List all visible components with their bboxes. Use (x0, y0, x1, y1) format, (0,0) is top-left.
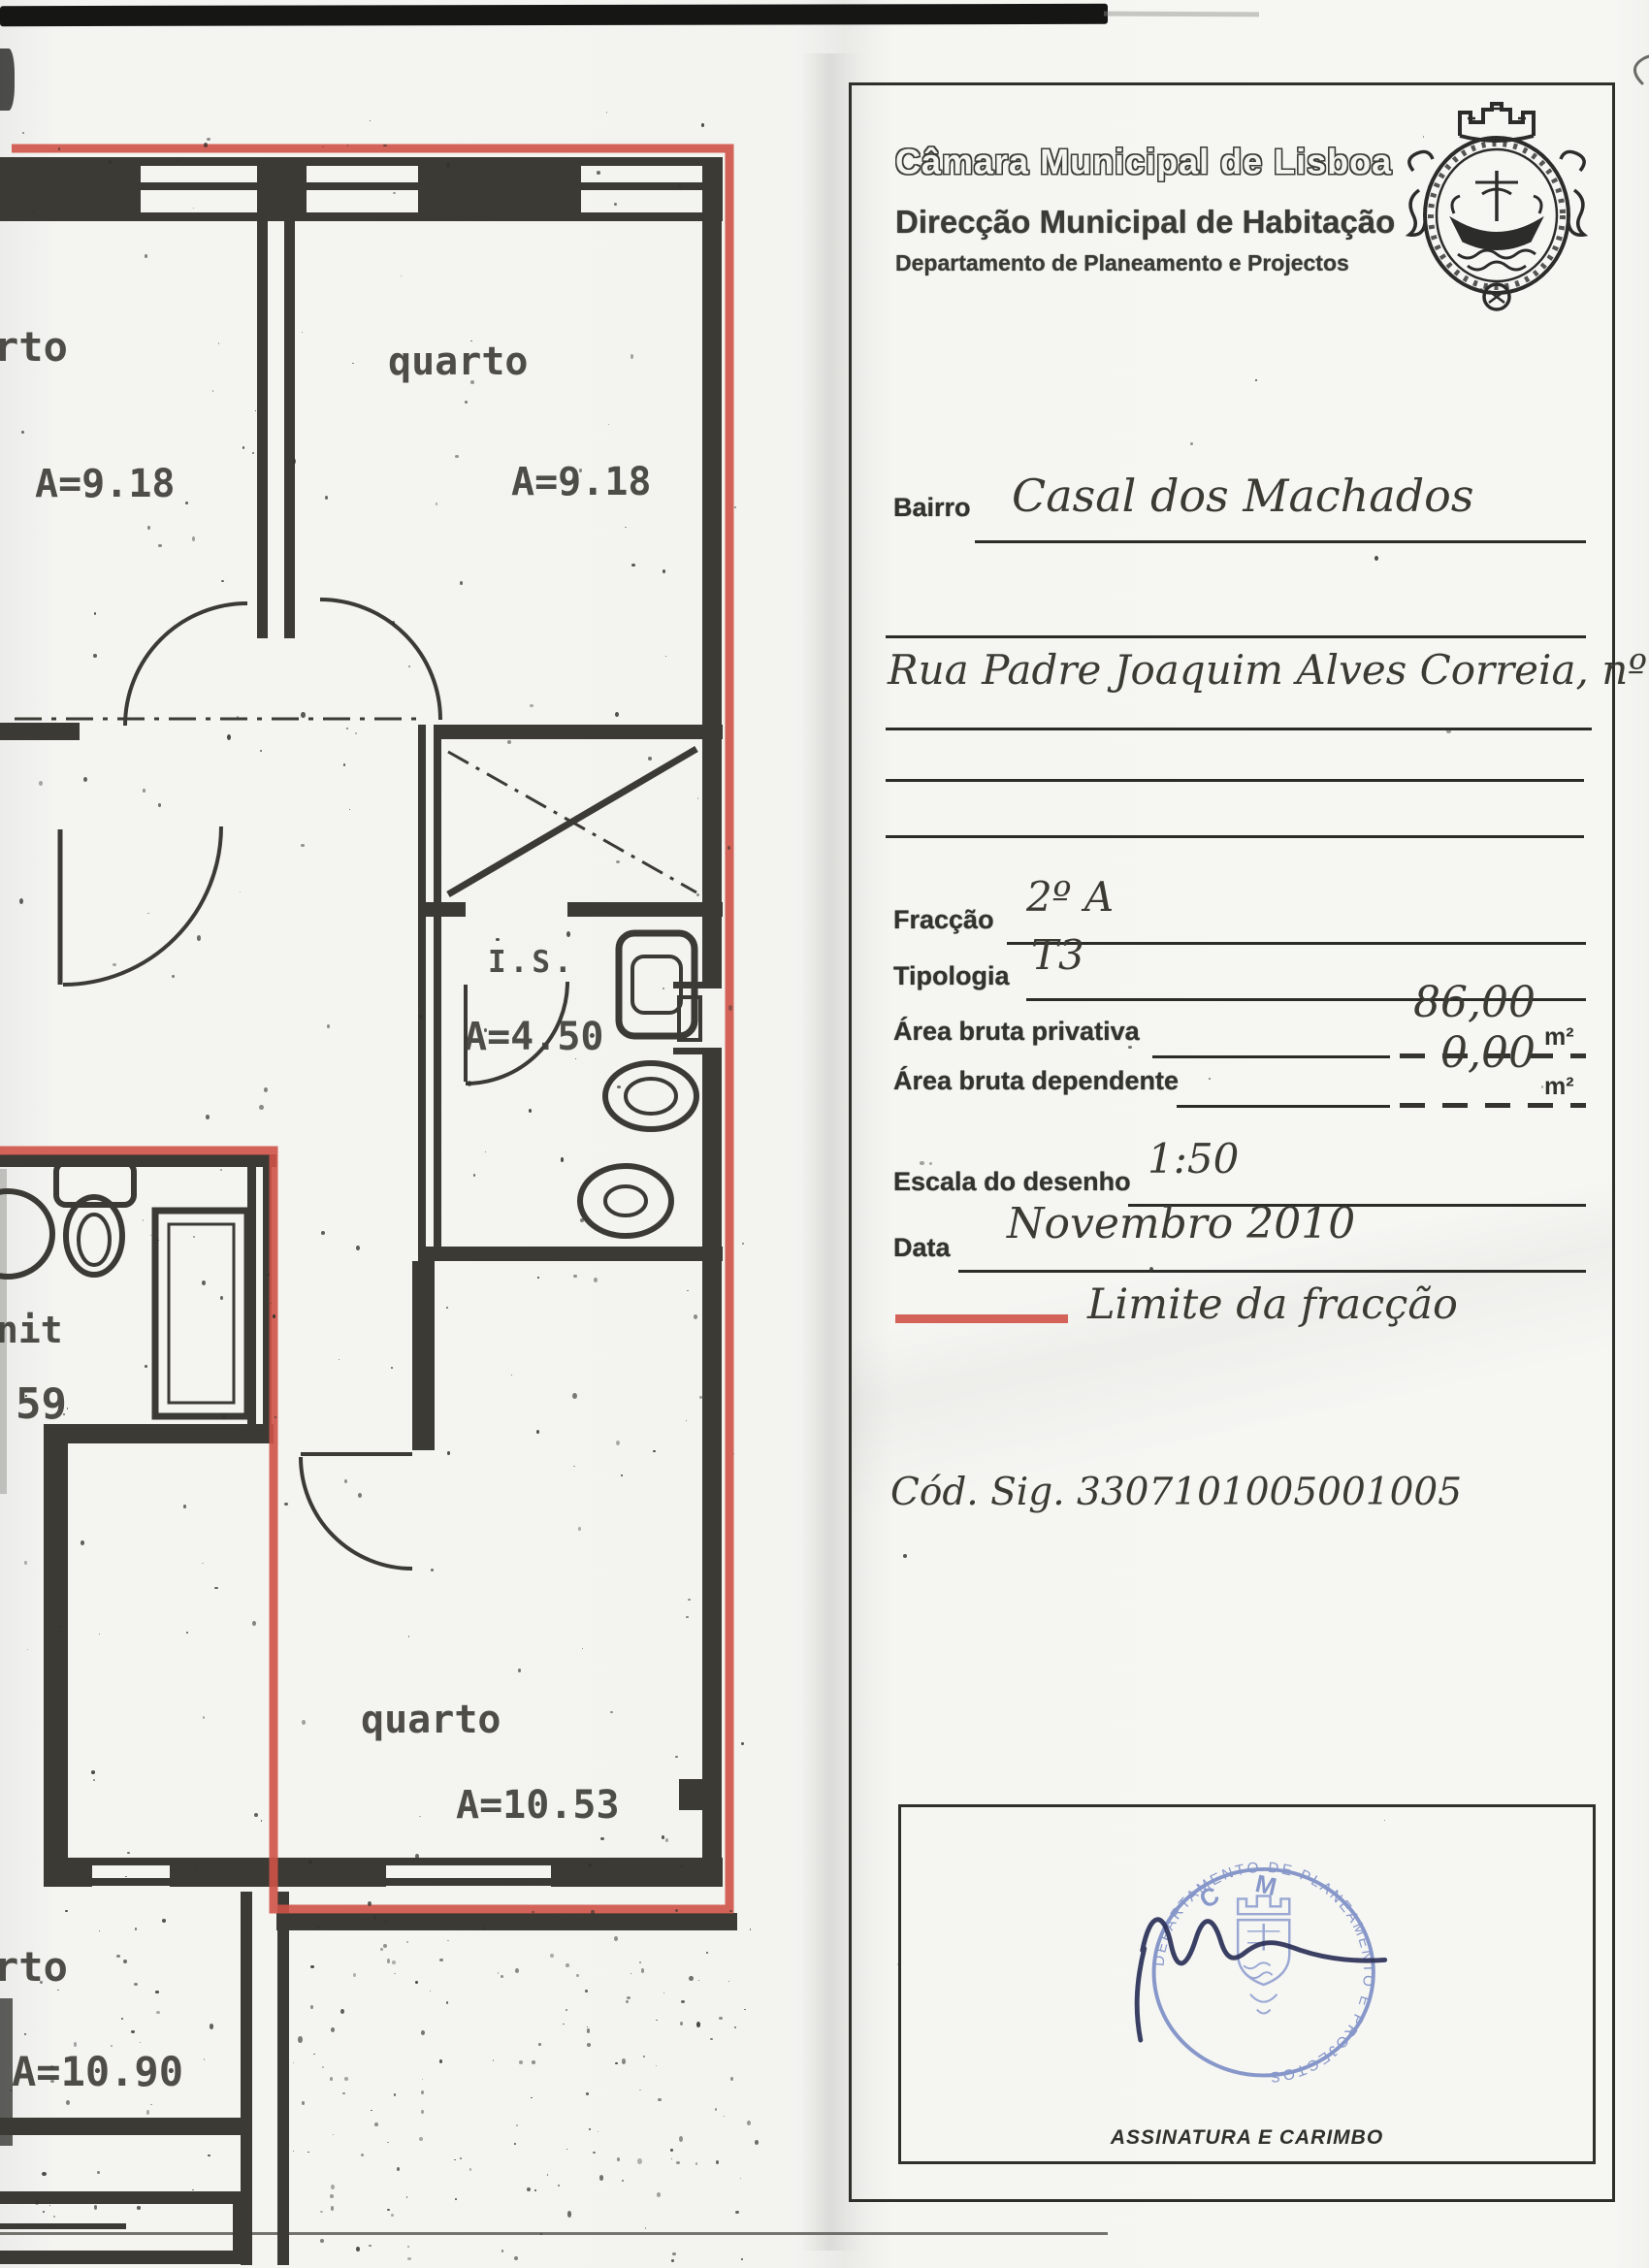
scan-speckle (610, 1711, 613, 1713)
scan-speckle (532, 1911, 534, 1913)
legend-limit-line (895, 1314, 1068, 1323)
scan-speckle (204, 143, 208, 147)
scan-speckle (688, 1599, 691, 1601)
scan-speckle (582, 1648, 583, 1649)
scan-speckle (614, 203, 617, 206)
scanned-document-page: rto A=9.18 quarto A=9.18 I.S. A=4.50 nit… (0, 0, 1649, 2268)
scan-speckle (681, 1865, 683, 1867)
area-dependente-value: 0,00 (1375, 1028, 1536, 1078)
data-value: Novembro 2010 (1007, 1199, 1355, 1248)
scan-speckle (66, 2100, 70, 2105)
scan-speckle (614, 1936, 618, 1941)
scan-speckle (534, 2189, 536, 2191)
scan-speckle (518, 1669, 521, 1672)
scan-speckle (63, 1413, 65, 1415)
blank-underline (886, 835, 1584, 838)
cml-stamp: C M L DEPARTAMENTO DE PLANEAMENTO E PROJ… (901, 1807, 1593, 2161)
scan-speckle (593, 2152, 596, 2154)
scan-speckle (255, 410, 256, 411)
scan-speckle (147, 526, 150, 530)
scan-speckle (221, 580, 224, 582)
street-value: Rua Padre Joaquim Alves Correia, nº 6 (888, 646, 1649, 694)
field-underline (958, 1270, 1586, 1273)
signature-caption: ASSINATURA E CARIMBO (901, 2126, 1593, 2150)
room-area-other: A=10.90 (12, 2048, 183, 2095)
scan-speckle (657, 2192, 661, 2197)
area-privativa-label: Área bruta privativa (893, 1017, 1140, 1047)
room-label-bottom: quarto (361, 1698, 501, 1742)
scan-speckle (158, 803, 161, 807)
scan-speckle (186, 1632, 188, 1634)
left-partial-label: nit (0, 1309, 63, 1351)
field-underline (1007, 942, 1586, 945)
scan-speckle (94, 612, 96, 615)
scan-speckle (273, 1314, 275, 1318)
scan-speckle (468, 1081, 471, 1086)
scan-speckle (140, 2042, 141, 2043)
room-area-top-left: A=9.18 (35, 462, 176, 506)
scan-speckle (220, 1296, 223, 1300)
area-dependente-label: Área bruta dependente (893, 1066, 1179, 1096)
scan-speckle (81, 1540, 84, 1545)
scan-speckle (920, 1161, 924, 1165)
scan-speckle (675, 1909, 678, 1912)
scan-speckle (585, 1990, 588, 1993)
scan-speckle (696, 893, 699, 896)
scan-speckle (591, 1910, 595, 1914)
scan-speckle (680, 2022, 683, 2025)
scan-speckle (501, 2250, 503, 2252)
scan-speckle (710, 2038, 713, 2040)
scan-speckle (512, 179, 514, 180)
field-underline (1152, 1055, 1390, 1058)
scan-speckle (21, 431, 24, 434)
scan-speckle (387, 2209, 390, 2211)
scan-speckle (689, 1976, 694, 1981)
plan-details (0, 599, 700, 1569)
scan-speckle (599, 2175, 603, 2181)
scan-speckle (626, 2000, 629, 2003)
scan-speckle (145, 254, 147, 258)
scan-speckle (701, 123, 704, 127)
floor-plan: rto A=9.18 quarto A=9.18 I.S. A=4.50 nit… (0, 0, 854, 2268)
scan-speckle (50, 2080, 54, 2083)
scan-speckle (662, 1835, 664, 1839)
scan-speckle (1190, 442, 1193, 445)
scan-speckle (155, 1991, 159, 1993)
fraccao-label: Fracção (893, 905, 994, 935)
room-area-bottom: A=10.53 (456, 1783, 620, 1828)
scan-speckle (275, 1416, 276, 1418)
scan-speckle (485, 1151, 486, 1152)
scan-speckle (530, 704, 533, 707)
bairro-label: Bairro (893, 493, 971, 523)
scan-speckle (658, 2098, 662, 2101)
scan-speckle (527, 2187, 531, 2191)
scan-speckle (641, 1968, 644, 1973)
bairro-value: Casal dos Machados (1012, 470, 1473, 522)
scan-speckle (747, 2121, 751, 2125)
scan-speckle (254, 1813, 258, 1817)
scan-speckle (183, 1505, 186, 1508)
escala-value: 1:50 (1148, 1135, 1239, 1183)
scan-speckle (202, 1280, 206, 1285)
scan-speckle (695, 2162, 697, 2165)
scan-speckle (113, 963, 116, 966)
scan-speckle (331, 2027, 335, 2032)
fraccao-value: 2º A (1026, 873, 1114, 921)
scan-speckle (455, 455, 459, 458)
scan-speckle (637, 2158, 642, 2164)
scan-speckle (331, 2185, 335, 2189)
scan-speckle (24, 1561, 27, 1565)
scan-speckle (1149, 1267, 1153, 1273)
scan-speckle (346, 728, 348, 729)
blank-underline (886, 779, 1584, 782)
info-panel: Câmara Municipal de Lisboa Direcção Muni… (849, 82, 1615, 2202)
scan-speckle (355, 732, 357, 734)
scan-speckle (383, 1944, 387, 1948)
scan-speckle (260, 750, 262, 752)
area-dependente-unit: m² (1544, 1073, 1574, 1101)
scan-speckle (203, 1716, 205, 1719)
bath-label: I.S. (488, 945, 576, 980)
scan-speckle (42, 2172, 47, 2176)
field-underline (886, 728, 1592, 730)
scan-speckle (436, 891, 437, 891)
legend-label: Limite da fracção (1087, 1280, 1458, 1329)
scan-speckle (507, 740, 511, 744)
escala-label: Escala do desenho (893, 1167, 1131, 1197)
scan-speckle (302, 332, 303, 333)
scan-speckle (1237, 668, 1241, 673)
scan-speckle (648, 757, 652, 761)
scan-speckle (469, 2168, 471, 2171)
scan-speckle (116, 1955, 120, 1958)
scan-speckle (145, 1365, 147, 1368)
scan-speckle (580, 1218, 584, 1222)
scan-speckle (511, 1375, 512, 1376)
scan-speckle (573, 1275, 577, 1278)
scan-speckle (127, 1852, 130, 1854)
scan-speckle (134, 1983, 138, 1986)
scan-speckle (330, 2194, 334, 2198)
scan-speckle (698, 1980, 699, 1981)
scan-speckle (267, 1274, 270, 1276)
scan-speckle (587, 2028, 590, 2033)
scan-speckle (356, 1246, 360, 1250)
room-label-top: quarto (388, 340, 529, 384)
field-dashes (1400, 1103, 1586, 1108)
scan-speckle (298, 2036, 303, 2043)
scan-speckle (194, 1865, 196, 1867)
scan-speckle (631, 564, 635, 567)
scan-speckle (93, 1779, 95, 1781)
scan-speckle (439, 1959, 443, 1961)
data-label: Data (893, 1233, 951, 1263)
tipologia-label: Tipologia (893, 961, 1010, 991)
scan-speckle (419, 1015, 423, 1019)
scan-speckle (97, 2171, 100, 2174)
scan-speckle (392, 621, 395, 625)
scan-speckle (340, 2009, 344, 2014)
area-privativa-value: 86,00 (1375, 978, 1536, 1027)
scan-speckle (415, 1981, 418, 1984)
scan-speckle (537, 1277, 539, 1279)
scan-speckle (516, 2124, 518, 2126)
scan-speckle (600, 1837, 604, 1840)
signature-box: C M L DEPARTAMENTO DE PLANEAMENTO E PROJ… (898, 1804, 1596, 2164)
scan-speckle (686, 1616, 689, 1618)
scan-speckle (259, 1105, 264, 1110)
scan-speckle (573, 1466, 575, 1467)
scan-speckle (735, 2211, 739, 2214)
room-label-other: rto (0, 1943, 68, 1991)
scan-speckle (162, 1919, 166, 1923)
scan-speckle (515, 1968, 519, 1973)
scan-speckle (608, 424, 609, 425)
scan-speckle (193, 1236, 195, 1238)
scan-speckle (35, 2200, 39, 2205)
scan-speckle (391, 2214, 394, 2217)
scan-speckle (594, 1278, 598, 1282)
scan-speckle (301, 712, 306, 718)
scan-speckle (519, 2060, 523, 2064)
scan-speckle (579, 469, 582, 472)
room-label-top-left: rto (0, 323, 68, 371)
scan-speckle (576, 1974, 579, 1977)
scan-speckle (706, 1952, 708, 1954)
cod-sig: Cód. Sig. 3307101005001005 (890, 1471, 1462, 1514)
scan-speckle (615, 712, 619, 717)
scan-speckle (172, 975, 175, 978)
field-underline (975, 540, 1586, 543)
scan-speckle (514, 2143, 516, 2145)
scan-speckle (639, 1961, 641, 1963)
scan-speckle (630, 354, 633, 359)
scan-speckle (455, 2198, 457, 2200)
scan-speckle (322, 146, 324, 147)
scan-speckle (616, 1441, 620, 1445)
scan-speckle (421, 2110, 424, 2114)
scan-speckle (446, 162, 450, 168)
scan-speckle (206, 1115, 210, 1119)
scan-speckle (361, 2154, 364, 2156)
scan-speckle (681, 2000, 685, 2003)
scan-speckle (1128, 1046, 1132, 1049)
scan-speckle (330, 2077, 333, 2081)
scan-speckle (561, 1157, 564, 1162)
scan-speckle (421, 2030, 425, 2035)
scan-speckle (93, 654, 97, 658)
area-privativa-unit: m² (1544, 1023, 1574, 1052)
scan-speckle (264, 1087, 268, 1092)
scan-speckle (308, 1860, 312, 1864)
scan-speckle (339, 1359, 339, 1360)
scan-speckle (622, 2058, 626, 2064)
scan-speckle (672, 2252, 676, 2255)
scan-speckle (484, 1028, 487, 1032)
scan-speckle (563, 2024, 565, 2025)
scan-speckle (40, 1981, 43, 1984)
scan-speckle (177, 159, 178, 161)
scan-speckle (617, 2157, 620, 2161)
subdepartment-title: Departamento de Planeamento e Projectos (895, 250, 1349, 276)
scan-speckle (380, 1948, 383, 1951)
scan-speckle (588, 1863, 592, 1867)
scan-speckle (419, 2137, 423, 2141)
scan-speckle (755, 2140, 759, 2145)
scan-speckle (903, 1554, 907, 1558)
left-partial-area: 59 (16, 1379, 67, 1429)
scan-speckle (496, 938, 500, 941)
scan-speckle (392, 1960, 396, 1964)
scan-speckle (158, 544, 162, 547)
scan-speckle (741, 1742, 744, 1745)
scan-speckle (470, 380, 474, 384)
scan-speckle (212, 390, 213, 392)
scan-speckle (1423, 136, 1424, 138)
scan-speckle (687, 1290, 689, 1291)
scan-speckle (310, 2005, 313, 2009)
scan-speckle (370, 120, 371, 121)
scan-speckle (406, 2196, 407, 2198)
scan-speckle (734, 2026, 736, 2028)
scan-speckle (606, 112, 607, 113)
scan-speckle (567, 2211, 571, 2218)
scan-speckle (342, 2092, 345, 2094)
scan-speckle (121, 2018, 123, 2020)
scan-speckle (407, 2246, 409, 2248)
scan-speckle (566, 1963, 569, 1967)
scan-speckle (137, 2206, 141, 2210)
scan-speckle (322, 2066, 324, 2068)
scan-speckle (374, 2122, 378, 2126)
scan-speckle (143, 789, 145, 793)
scan-speckle (302, 1720, 306, 1725)
scan-speckle (1446, 729, 1451, 733)
scan-speckle (60, 1626, 62, 1628)
scan-speckle (214, 1587, 218, 1589)
scan-speckle (207, 138, 210, 141)
scan-speckle (301, 844, 305, 847)
org-title: Câmara Municipal de Lisboa (895, 142, 1392, 182)
scan-speckle (572, 1393, 577, 1399)
scan-speckle (679, 2136, 683, 2142)
field-underline (1177, 1105, 1390, 1108)
room-area-top: A=9.18 (511, 460, 652, 504)
scan-speckle (74, 2042, 77, 2047)
lisbon-crest-icon (1390, 85, 1603, 316)
tipologia-value: T3 (1031, 931, 1084, 979)
scan-speckle (929, 1162, 932, 1165)
scan-speckle (558, 2185, 560, 2187)
scan-speckle (325, 496, 328, 500)
scan-speckle (32, 211, 34, 212)
department-title: Direcção Municipal de Habitação (895, 204, 1395, 241)
scan-speckle (344, 2077, 348, 2081)
scan-speckle (131, 2030, 135, 2033)
scan-speckle (208, 2155, 210, 2156)
scan-speckle (358, 1493, 362, 1498)
bath-area: A=4.50 (464, 1015, 604, 1059)
scan-speckle (368, 1901, 372, 1906)
scan-speckle (645, 2227, 646, 2229)
scan-speckle (566, 2009, 567, 2011)
scan-speckle (369, 2245, 372, 2247)
scan-speckle (407, 2257, 411, 2260)
blank-underline (886, 635, 1586, 638)
scan-speckle (1255, 379, 1257, 381)
scan-edge-tail (1104, 12, 1259, 17)
